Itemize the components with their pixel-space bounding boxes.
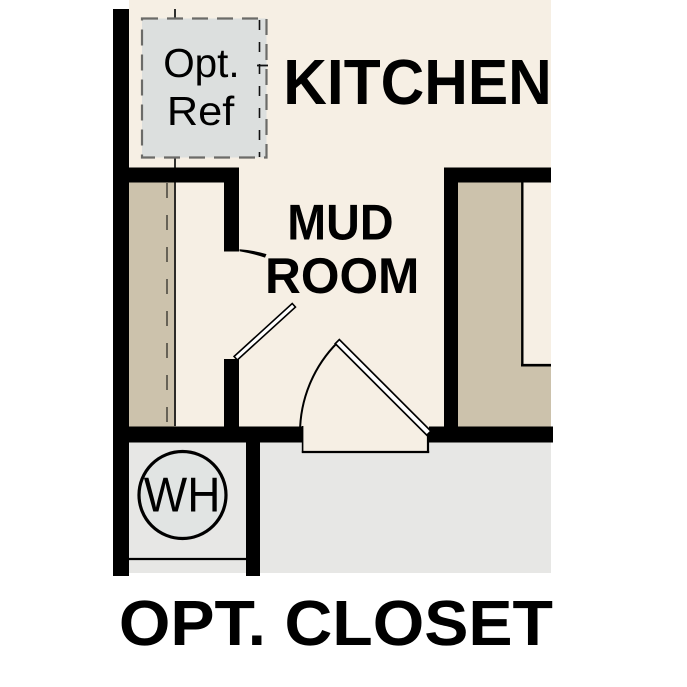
svg-text:OPT. CLOSET: OPT. CLOSET <box>119 587 553 659</box>
svg-text:MUD: MUD <box>287 194 393 251</box>
svg-text:Opt.: Opt. <box>163 40 239 86</box>
svg-text:ROOM: ROOM <box>265 247 419 304</box>
svg-text:KITCHEN: KITCHEN <box>283 46 552 118</box>
svg-text:Ref: Ref <box>167 88 235 134</box>
svg-text:WH: WH <box>144 468 221 522</box>
